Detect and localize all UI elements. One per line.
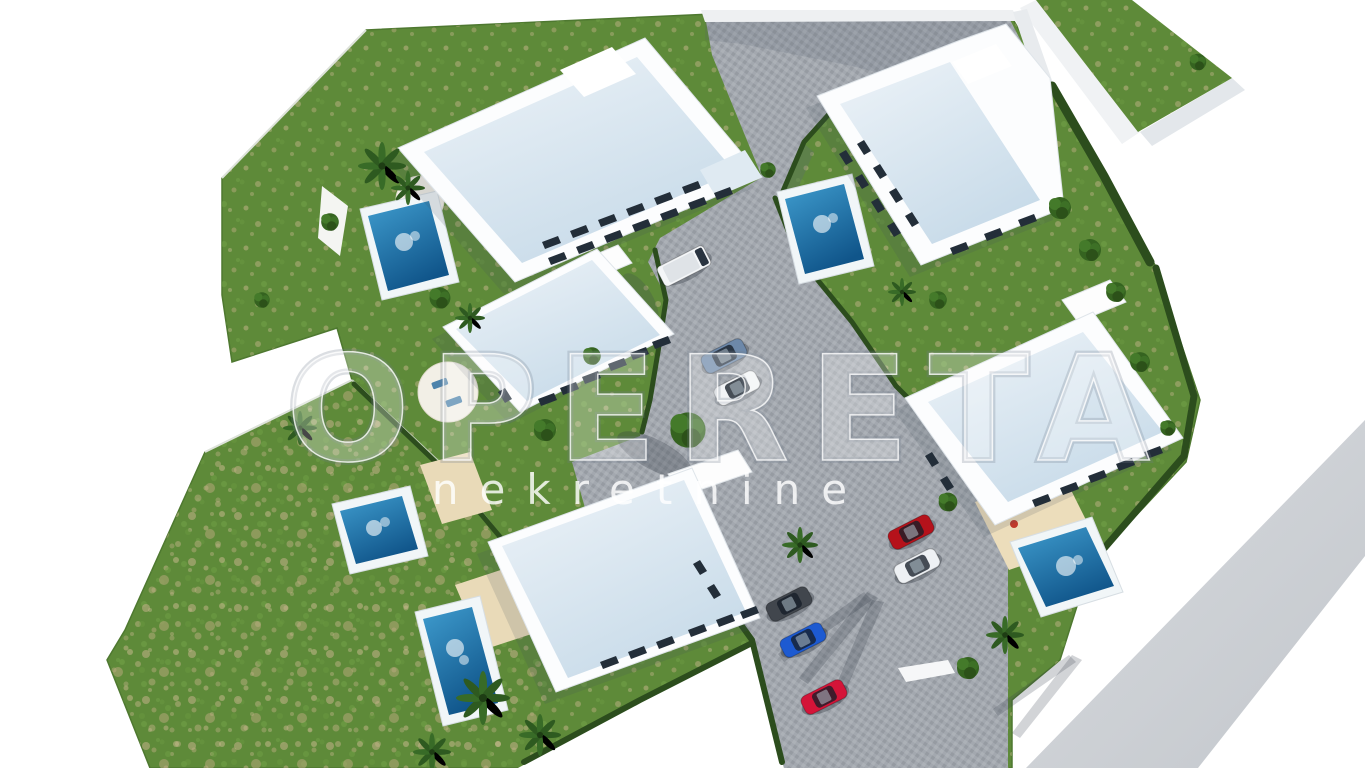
palm-tree [888,278,916,306]
palm-tree [391,171,425,205]
pool-ripple [410,231,420,241]
plaza-wall [701,10,1017,22]
pool-ripple [446,639,464,657]
pool-ripple [459,655,469,665]
shrub [1106,282,1126,302]
shrub [957,657,979,679]
palm-tree [456,671,510,725]
shrub [939,493,958,512]
pool-ripple [1073,555,1083,565]
shrub [1079,239,1101,261]
watermark-subtitle: nekretnine [432,465,868,514]
shrub [929,291,947,309]
shrub [1190,54,1207,71]
property-aerial-render: OPERETA OPERETA nekretnine [0,0,1365,768]
palm-tree [519,714,561,756]
shrub [760,162,775,177]
shrub [430,288,451,309]
pool-ripple [1056,556,1076,576]
site-plan-render: OPERETA OPERETA nekretnine [0,0,1365,768]
pool-ripple [380,517,390,527]
palm-tree [782,527,818,563]
palm-tree [358,142,406,190]
shrub [1049,197,1071,219]
pool-ripple [366,520,382,536]
watermark: OPERETA OPERETA nekretnine [286,325,1170,514]
pool-ripple [828,213,838,223]
shrub [254,292,269,307]
palm-tree [986,616,1024,654]
shrub [321,213,339,231]
